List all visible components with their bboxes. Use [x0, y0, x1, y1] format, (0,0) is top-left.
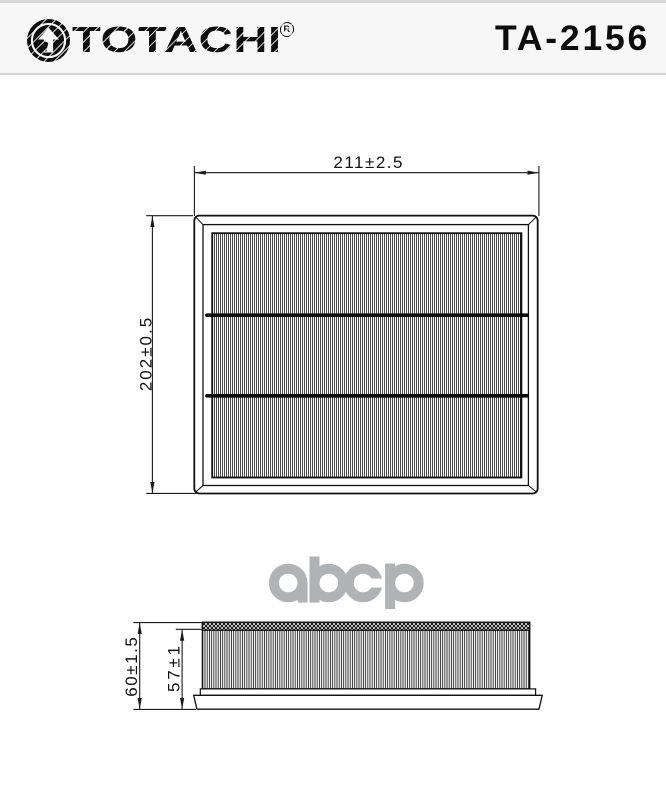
- svg-text:57±1: 57±1: [165, 643, 184, 692]
- svg-text:211±2.5: 211±2.5: [333, 153, 404, 172]
- svg-text:202±0.5: 202±0.5: [136, 316, 155, 391]
- svg-text:60±1.5: 60±1.5: [122, 636, 141, 697]
